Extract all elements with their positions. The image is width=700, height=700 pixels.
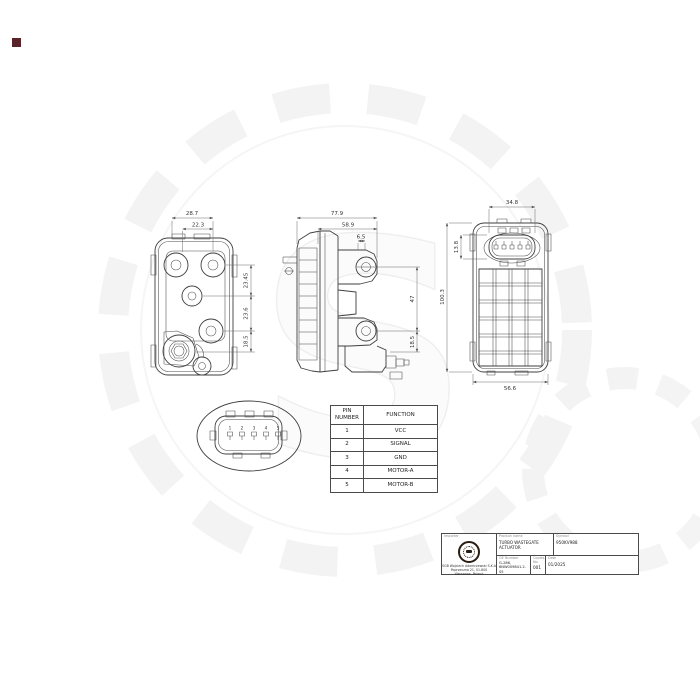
connector-detail-view: 1 2 3 4 5 — [197, 401, 301, 471]
rear-boss-hole — [182, 286, 202, 306]
date-value: 01/2025 — [546, 561, 639, 567]
symbol-value: 950KV988 — [554, 539, 639, 545]
front-connector — [484, 228, 540, 266]
dim-front-conn-height: 13.8 — [454, 240, 460, 253]
pin-number-label: 4 — [265, 426, 268, 431]
rear-body-outline — [155, 238, 233, 375]
rear-dimensions: 28.7 22.3 23.45 23.6 18.5 — [172, 211, 255, 352]
side-left-profile — [297, 231, 320, 372]
rear-boss-hole — [193, 357, 211, 375]
oe-number-value-line2: 6NW009841.2-S5 — [497, 565, 530, 574]
company-logo-core — [463, 546, 475, 558]
product-name-cell: Product name TURBO WASTEGATE ACTUATOR — [497, 534, 554, 556]
dim-front-width: 56.6 — [504, 386, 517, 392]
symbol-cell: Symbol 950KV988 — [554, 534, 639, 556]
function-cell: MOTOR-A — [364, 465, 438, 479]
connector-detail-ellipse — [197, 401, 301, 471]
front-tab — [546, 234, 551, 251]
company-logo-stamp — [458, 541, 480, 563]
dim-overall-height: 100.3 — [440, 289, 446, 305]
product-name-value: TURBO WASTEGATE ACTUATOR — [497, 539, 553, 550]
pin-function-table: PIN NUMBER FUNCTION 1 VCC 2 SIGNAL 3 GND… — [330, 405, 438, 493]
pin-cell: 4 — [331, 465, 364, 479]
logo-cell-label: Importer — [442, 534, 496, 539]
pin-table-header-function: FUNCTION — [364, 406, 438, 425]
front-tab — [497, 219, 507, 223]
front-body-inner — [477, 227, 545, 369]
pin-cell: 1 — [331, 425, 364, 439]
dim-side-width-inner: 58.9 — [342, 223, 355, 229]
technical-drawing: 28.7 22.3 23.45 23.6 18.5 — [0, 0, 700, 700]
pin-table-header-row: PIN NUMBER FUNCTION — [331, 406, 438, 425]
function-cell: SIGNAL — [364, 438, 438, 452]
dim-side-width-outer: 77.9 — [331, 211, 344, 217]
rear-boss-hole-inner — [188, 292, 196, 300]
rear-boss-hole-inner — [171, 260, 181, 270]
side-view: 77.9 58.9 6.5 47 18.5 — [283, 211, 420, 379]
rear-boss-hole-inner — [208, 260, 218, 270]
pin-cell: 3 — [331, 452, 364, 466]
rear-actuator-boss — [163, 335, 195, 367]
company-address: Poprzeczna 21, 01-800 Warszawa, Poland — [442, 568, 496, 574]
date-cell: Date 01/2025 — [546, 556, 639, 575]
copies-number-label: Copies No. — [531, 556, 545, 564]
front-tab — [521, 219, 531, 223]
dim-front-conn-width: 34.8 — [506, 200, 519, 206]
connector-detail-body — [215, 416, 282, 454]
side-hole-lower-inner — [362, 327, 371, 336]
copies-number-cell: Copies No. 001 — [531, 556, 546, 575]
dim-rear-width-outer: 28.7 — [186, 211, 199, 217]
function-cell: GND — [364, 452, 438, 466]
front-rib-grid — [479, 269, 542, 366]
pin-number-label: 2 — [241, 426, 244, 431]
side-top-cap — [320, 231, 338, 236]
front-tab — [546, 342, 551, 361]
side-mid-block — [338, 290, 356, 316]
pin-number-label: 5 — [277, 426, 280, 431]
rear-boss-hole — [199, 319, 223, 343]
rear-boss-hole — [164, 253, 188, 277]
title-block: Importer SGB Wojciech Adamczewski S.K.A … — [441, 533, 639, 575]
oe-number-cell: OE Number G-286, 6NW009841.2-S5 — [497, 556, 531, 575]
dim-rear-right-mid: 23.6 — [244, 307, 250, 320]
front-tab — [470, 234, 475, 251]
pin-cell: 2 — [331, 438, 364, 452]
front-tab — [470, 342, 475, 361]
table-row: 3 GND — [331, 452, 438, 466]
table-row: 4 MOTOR-A — [331, 465, 438, 479]
rear-boss-hole-inner — [199, 363, 206, 370]
front-dimensions: 34.8 13.8 56.6 — [454, 200, 548, 392]
side-connector-stub — [345, 346, 409, 379]
dim-rear-right-top: 23.45 — [244, 272, 250, 288]
company-logo-glyph — [466, 550, 472, 554]
pin-table-header-pin: PIN NUMBER — [331, 406, 364, 425]
table-row: 2 SIGNAL — [331, 438, 438, 452]
rear-view: 28.7 22.3 23.45 23.6 18.5 — [151, 211, 255, 375]
rear-actuator-boss-inner — [174, 346, 184, 356]
rear-boss-hole — [201, 253, 225, 277]
side-rib-block — [299, 248, 317, 360]
dim-side-hole-span: 47 — [410, 295, 416, 302]
rear-boss-hole-inner — [206, 326, 216, 336]
pin-cell: 5 — [331, 479, 364, 493]
side-bottom-cap — [320, 370, 338, 372]
drawing-sheet: S — [0, 0, 700, 700]
dim-rear-right-bottom: 18.5 — [244, 335, 250, 348]
side-rod — [283, 257, 297, 275]
dim-side-lower: 18.5 — [410, 335, 416, 348]
pin-number-label: 1 — [229, 426, 232, 431]
copies-number-value: 001 — [531, 564, 545, 570]
dim-rear-width-inner: 22.3 — [192, 223, 205, 229]
front-view: 34.8 13.8 56.6 — [454, 200, 551, 392]
function-cell: VCC — [364, 425, 438, 439]
dim-side-offset: 6.5 — [357, 235, 366, 241]
side-ribs — [299, 260, 317, 344]
title-block-logo-cell: Importer SGB Wojciech Adamczewski S.K.A … — [442, 534, 497, 575]
connector-detail-pins — [228, 432, 281, 440]
table-row: 5 MOTOR-B — [331, 479, 438, 493]
front-connector-pins — [494, 241, 530, 249]
side-hole-lower — [356, 321, 376, 341]
function-cell: MOTOR-B — [364, 479, 438, 493]
pin-number-label: 3 — [253, 426, 256, 431]
table-row: 1 VCC — [331, 425, 438, 439]
